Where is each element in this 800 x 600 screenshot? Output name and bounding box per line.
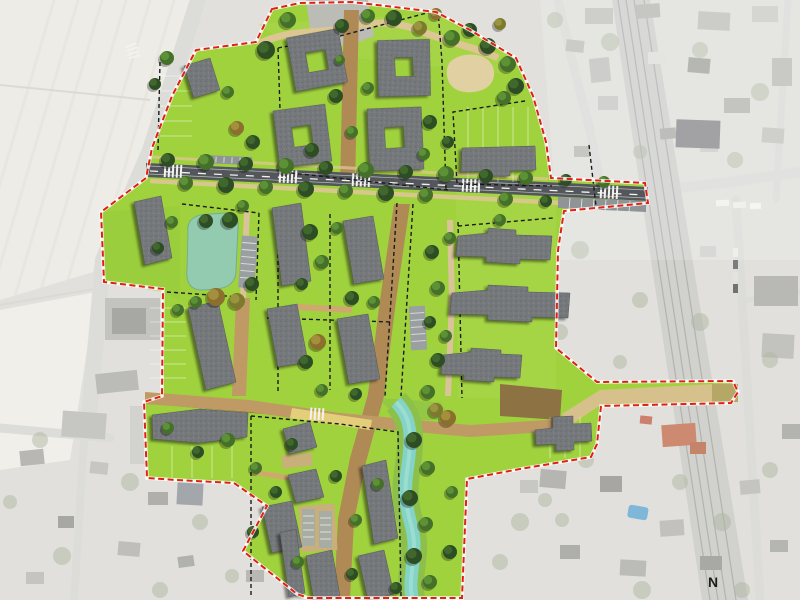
masterplan-svg [0, 0, 800, 600]
dirt-area-southeast [500, 384, 562, 420]
masterplan-map: N [0, 0, 800, 600]
center-connector-path [297, 307, 352, 310]
sand-play-area [447, 55, 494, 93]
aerial-wash-topright [540, 0, 800, 260]
north-label: N [708, 574, 718, 590]
